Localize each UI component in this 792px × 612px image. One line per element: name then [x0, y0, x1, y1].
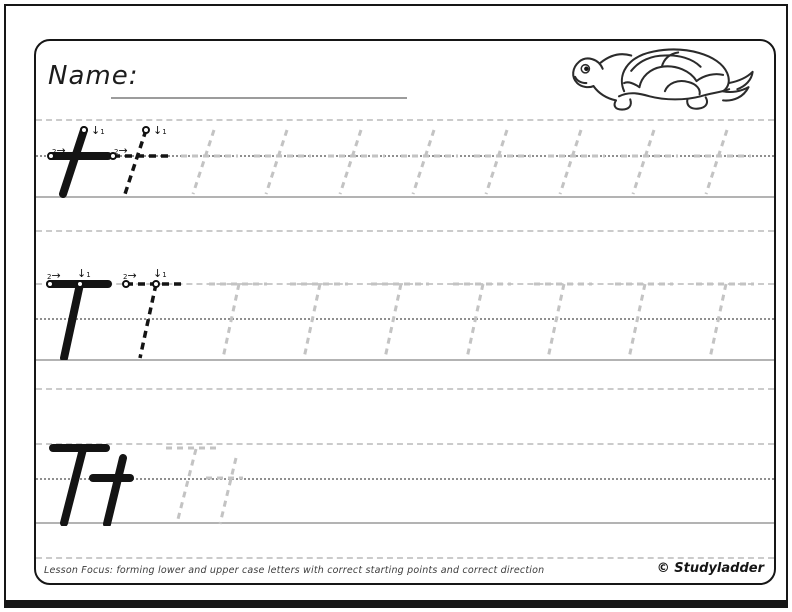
stroke1-label: ↓1 — [77, 264, 91, 280]
traced-letter-t[interactable] — [325, 124, 389, 198]
lesson-focus-text: Lesson Focus: forming lower and upper ca… — [44, 565, 544, 576]
traced-letter-t[interactable] — [471, 124, 535, 198]
turtle-scale-3 — [639, 66, 696, 87]
traced-letter-t[interactable] — [691, 124, 755, 198]
stroke1-label: ↓1 — [91, 121, 105, 137]
turtle-neck-bottom — [594, 86, 616, 100]
stroke1-start-dot — [80, 126, 88, 134]
stroke1-start-dot — [76, 280, 84, 288]
turtle-scale-7 — [665, 81, 700, 94]
turtle-illustration — [568, 46, 772, 114]
traced-letter-Tt[interactable] — [161, 444, 273, 526]
dashed-letter-T — [122, 280, 188, 360]
guide-line-desc-row3 — [36, 557, 774, 559]
guide-line-top-row1 — [36, 119, 774, 121]
turtle-scale-6 — [624, 82, 639, 87]
stroke2-label: 2→ — [123, 266, 137, 282]
stroke2-label: 2→ — [52, 141, 66, 157]
traced-letter-t[interactable] — [398, 124, 462, 198]
traced-letter-T[interactable] — [205, 280, 271, 360]
guide-line-desc-row2 — [36, 388, 774, 390]
traced-letter-T[interactable] — [449, 280, 515, 360]
turtle-front-leg — [615, 99, 631, 109]
traced-letter-T[interactable] — [611, 280, 677, 360]
stroke1-label: ↓1 — [153, 264, 167, 280]
traced-letter-t[interactable] — [251, 124, 315, 198]
turtle-scale-2 — [665, 55, 701, 66]
stroke1-start-dot — [142, 126, 150, 134]
stroke2-label: 2→ — [47, 266, 61, 282]
guide-line-desc-row1 — [36, 230, 774, 232]
stroke2-label: 2→ — [114, 141, 128, 157]
worksheet-card: Name: — [34, 39, 776, 585]
solid-letter-T — [46, 280, 112, 360]
worksheet-content: Name: — [36, 41, 774, 583]
solid-letter-Tt — [48, 444, 160, 526]
turtle-pupil — [584, 67, 588, 71]
traced-letter-T[interactable] — [692, 280, 758, 360]
traced-letter-T[interactable] — [286, 280, 352, 360]
name-label: Name: — [48, 61, 138, 91]
turtle-neck-top — [601, 54, 632, 62]
traced-letter-T[interactable] — [367, 280, 433, 360]
stroke1-start-dot — [152, 280, 160, 288]
turtle-scale-5 — [697, 74, 724, 81]
traced-letter-T[interactable] — [530, 280, 596, 360]
copyright-text: © Studyladder — [657, 561, 764, 576]
stroke1-label: ↓1 — [153, 121, 167, 137]
turtle-shell-rim — [619, 89, 729, 99]
worksheet-outer-border: Name: — [4, 4, 788, 608]
name-input-line[interactable] — [111, 97, 407, 99]
traced-letter-t[interactable] — [545, 124, 609, 198]
traced-letter-t[interactable] — [178, 124, 242, 198]
traced-letter-t[interactable] — [618, 124, 682, 198]
